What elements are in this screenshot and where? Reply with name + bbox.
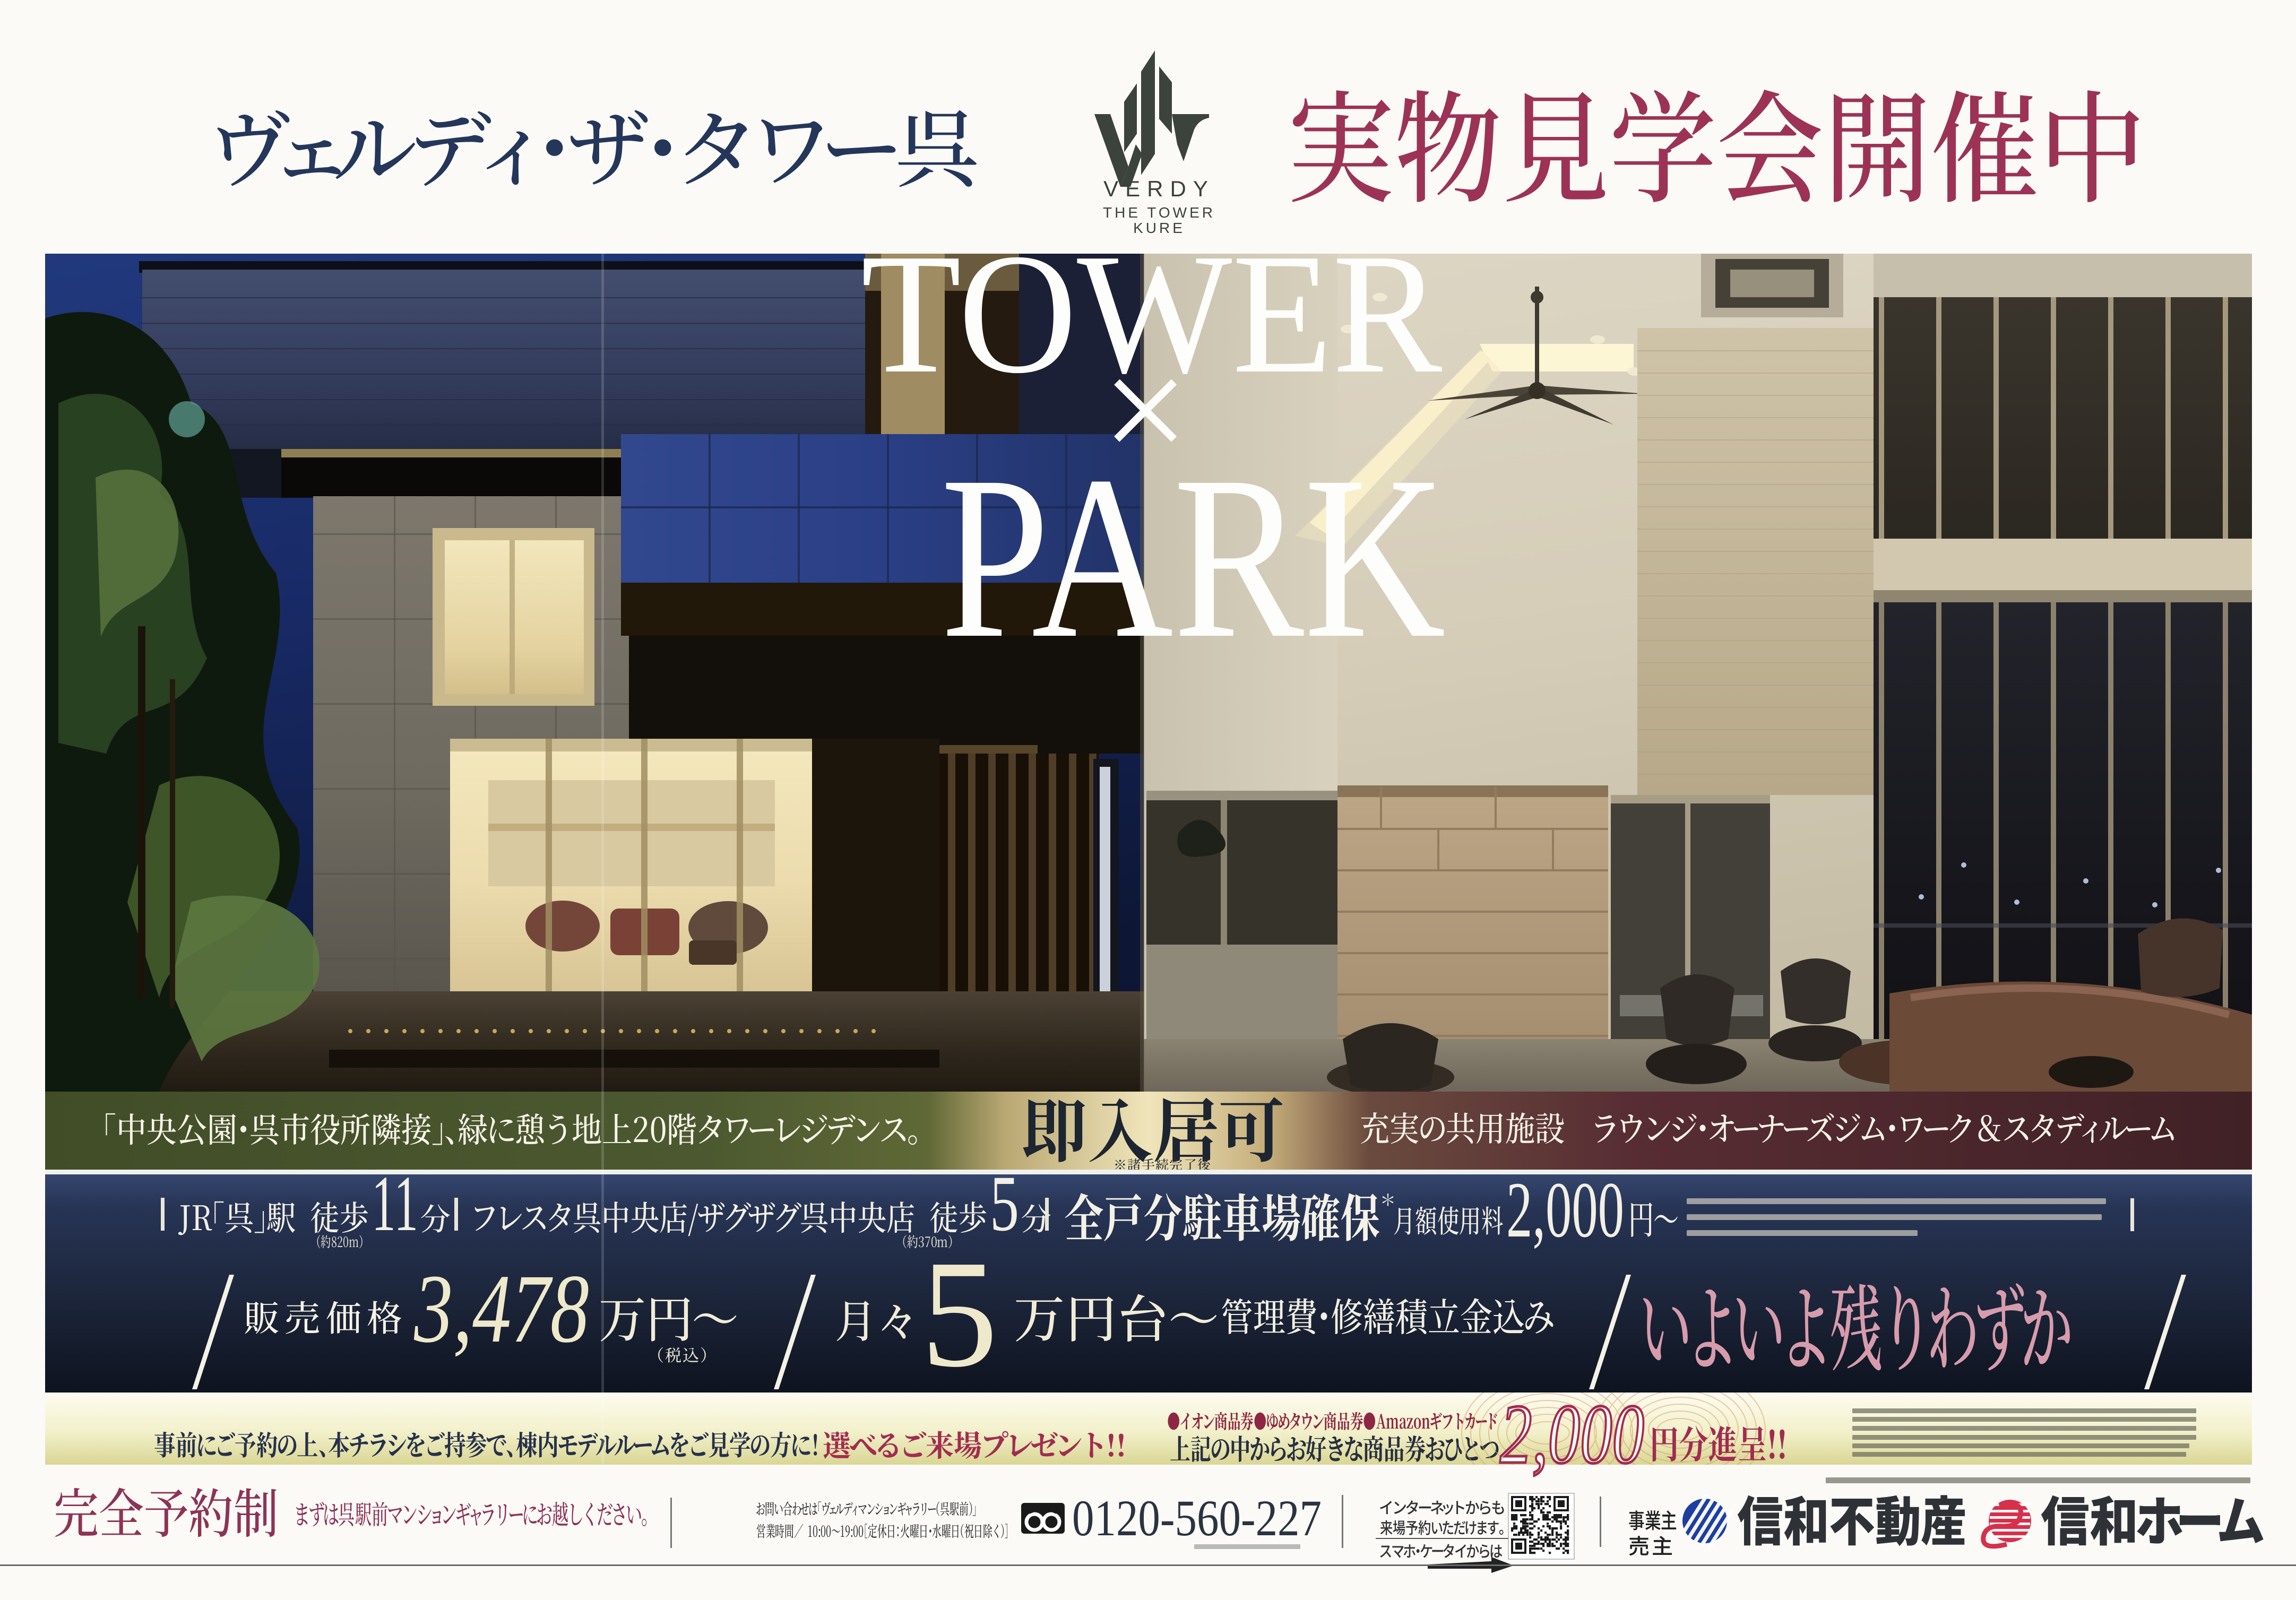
svg-text:3,478: 3,478 [413, 1255, 589, 1363]
svg-text:PARK: PARK [940, 428, 1446, 687]
svg-text:2,000: 2,000 [1506, 1166, 1624, 1254]
svg-text:5: 5 [921, 1229, 998, 1399]
svg-text:2,000: 2,000 [1500, 1387, 1644, 1481]
svg-text:VERDY: VERDY [1103, 176, 1215, 201]
svg-text:0120-560-227: 0120-560-227 [1072, 1490, 1322, 1546]
svg-text:11: 11 [372, 1160, 418, 1248]
